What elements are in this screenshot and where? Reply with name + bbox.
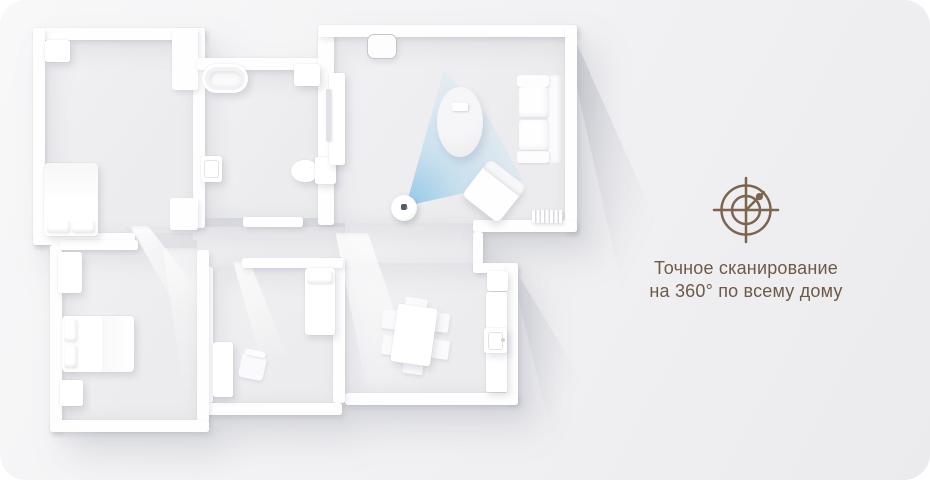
coffee-table bbox=[437, 87, 483, 157]
sofa-backrest bbox=[548, 75, 561, 163]
hero-canvas: Точное сканирование на 360° по всему дом… bbox=[0, 0, 930, 480]
sofa-armrest bbox=[517, 75, 549, 87]
robot-vacuum bbox=[391, 195, 417, 221]
wall bbox=[50, 420, 209, 432]
washer-drum bbox=[204, 160, 219, 178]
air-purifier bbox=[367, 34, 397, 59]
dresser bbox=[45, 40, 70, 62]
dining-chair bbox=[431, 339, 450, 360]
bath-cabinet bbox=[294, 64, 320, 86]
double-bed bbox=[44, 163, 98, 236]
wall bbox=[172, 28, 198, 90]
toilet-bowl bbox=[291, 160, 317, 182]
radiator bbox=[532, 210, 563, 223]
vacuum-led bbox=[406, 207, 408, 209]
kitchen-sink bbox=[484, 328, 507, 353]
pillow bbox=[72, 221, 95, 233]
wall bbox=[197, 250, 209, 422]
pillow bbox=[307, 271, 333, 284]
washing-machine bbox=[201, 156, 222, 182]
wall bbox=[243, 217, 303, 227]
wall bbox=[345, 393, 518, 405]
cabinet bbox=[213, 342, 233, 397]
wall bbox=[60, 240, 138, 250]
faucet bbox=[501, 338, 505, 342]
bathtub-basin bbox=[205, 67, 245, 90]
pillow bbox=[64, 319, 77, 342]
nightstand bbox=[60, 380, 83, 406]
kitchen-cabinet bbox=[487, 271, 508, 291]
feature-caption-line1: Точное сканирование bbox=[626, 257, 866, 280]
feature-block: Точное сканирование на 360° по всему дом… bbox=[626, 173, 866, 303]
feature-caption-line2: на 360° по всему дому bbox=[626, 280, 866, 303]
bathtub bbox=[202, 64, 248, 93]
radar-360-icon bbox=[709, 173, 783, 247]
remote bbox=[452, 103, 468, 111]
pillow bbox=[47, 221, 70, 233]
tv-screen bbox=[326, 89, 331, 141]
dining-table bbox=[390, 303, 438, 366]
duvet-fold bbox=[102, 316, 134, 372]
apartment-floorplan bbox=[0, 0, 640, 480]
wall bbox=[565, 25, 577, 232]
wall bbox=[318, 25, 577, 37]
tv-console bbox=[329, 73, 345, 165]
desk-chair bbox=[238, 352, 268, 382]
duvet-fold bbox=[44, 163, 98, 203]
wall bbox=[170, 198, 198, 230]
pillow bbox=[64, 345, 77, 368]
sofa-cushion bbox=[519, 87, 548, 117]
single-bed bbox=[305, 268, 335, 335]
bed bbox=[62, 316, 134, 372]
wardrobe bbox=[58, 252, 82, 293]
wall bbox=[242, 258, 343, 268]
wall bbox=[202, 403, 342, 415]
sofa bbox=[517, 75, 561, 163]
sofa-cushion bbox=[519, 120, 548, 150]
sofa-armrest bbox=[517, 151, 549, 163]
